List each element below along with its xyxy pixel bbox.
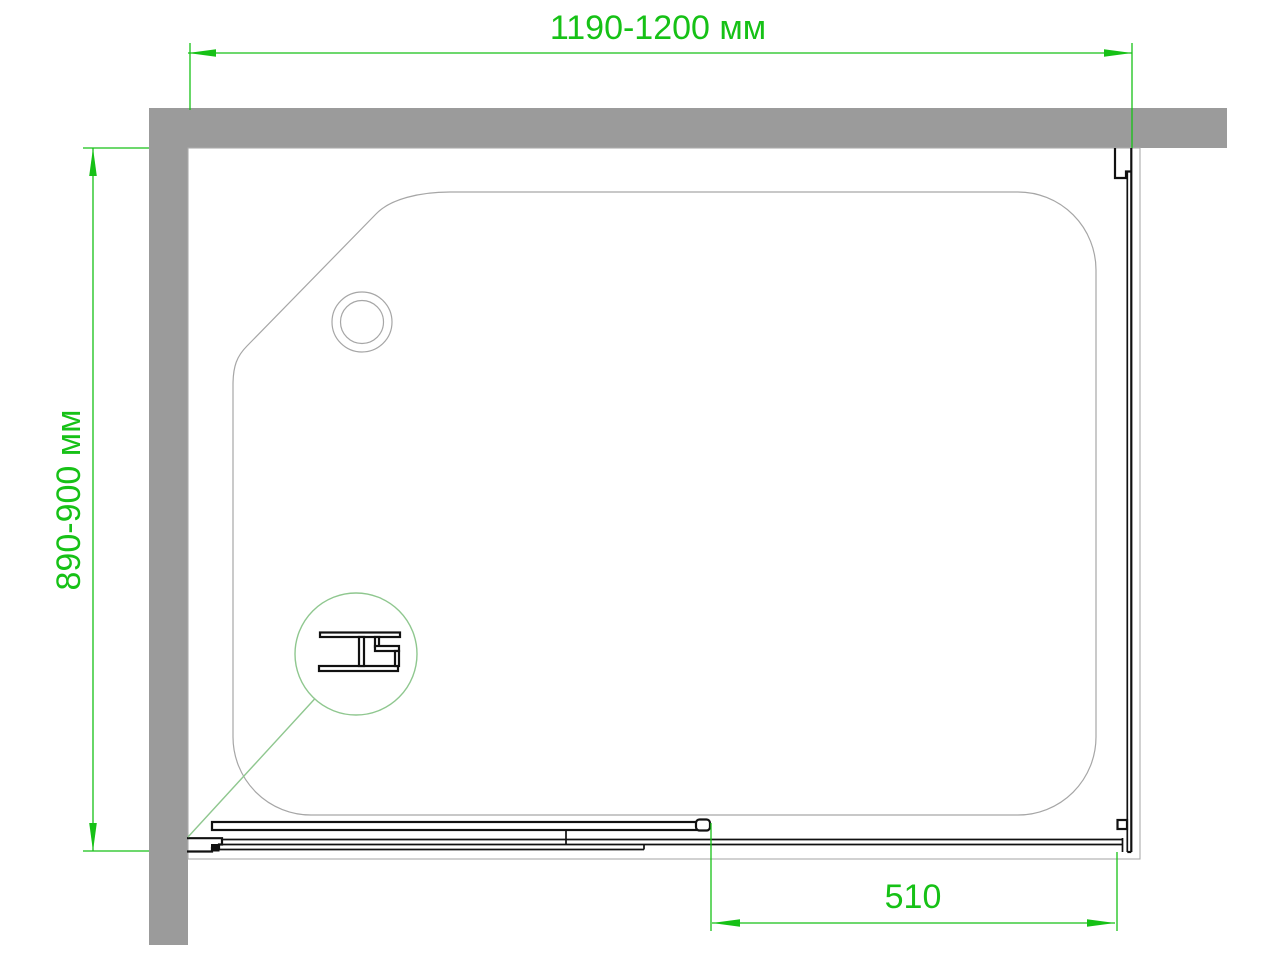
opening-arrow-left-icon <box>712 919 740 927</box>
depth-dimension: 890-900 мм <box>50 148 149 851</box>
shower-enclosure-plan-drawing: 1190-1200 мм 890-900 мм 510 <box>0 0 1280 960</box>
width-arrow-left-icon <box>188 49 216 57</box>
depth-arrow-bottom-icon <box>89 823 97 851</box>
side-glass-bottom-bracket <box>1118 820 1128 829</box>
profile-step-lower <box>395 651 399 666</box>
depth-dimension-label: 890-900 мм <box>50 410 88 591</box>
shower-tray-outline <box>233 192 1096 815</box>
width-arrow-right-icon <box>1104 49 1132 57</box>
door-handle-cap <box>696 820 710 831</box>
technical-drawing-canvas: 1190-1200 мм 890-900 мм 510 <box>0 0 1280 960</box>
sliding-door-glass <box>212 822 708 830</box>
left-wall <box>149 108 188 945</box>
width-dimension-label: 1190-1200 мм <box>550 9 766 47</box>
wall-profile-right <box>1115 148 1131 178</box>
detail-leader-line <box>188 699 315 837</box>
top-wall <box>149 108 1227 148</box>
depth-arrow-top-icon <box>89 148 97 176</box>
wall-profile-left-block <box>211 844 220 852</box>
h-connector-profile-section <box>319 633 400 672</box>
drain-icon <box>341 301 384 344</box>
opening-dimension-label: 510 <box>885 878 942 916</box>
enclosure-footprint-outline <box>188 148 1140 859</box>
opening-arrow-right-icon <box>1087 919 1115 927</box>
profile-center-web <box>359 637 364 666</box>
